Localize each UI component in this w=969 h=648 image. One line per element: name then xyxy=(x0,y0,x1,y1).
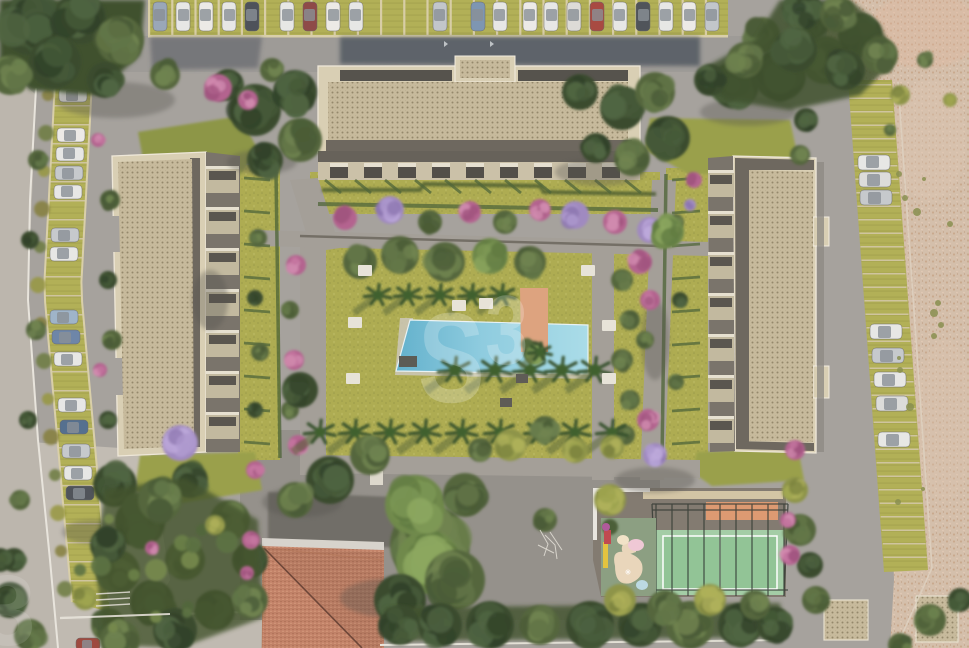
svg-text:3: 3 xyxy=(485,275,528,385)
svg-text:3: 3 xyxy=(0,555,36,648)
svg-text:S: S xyxy=(418,287,485,430)
